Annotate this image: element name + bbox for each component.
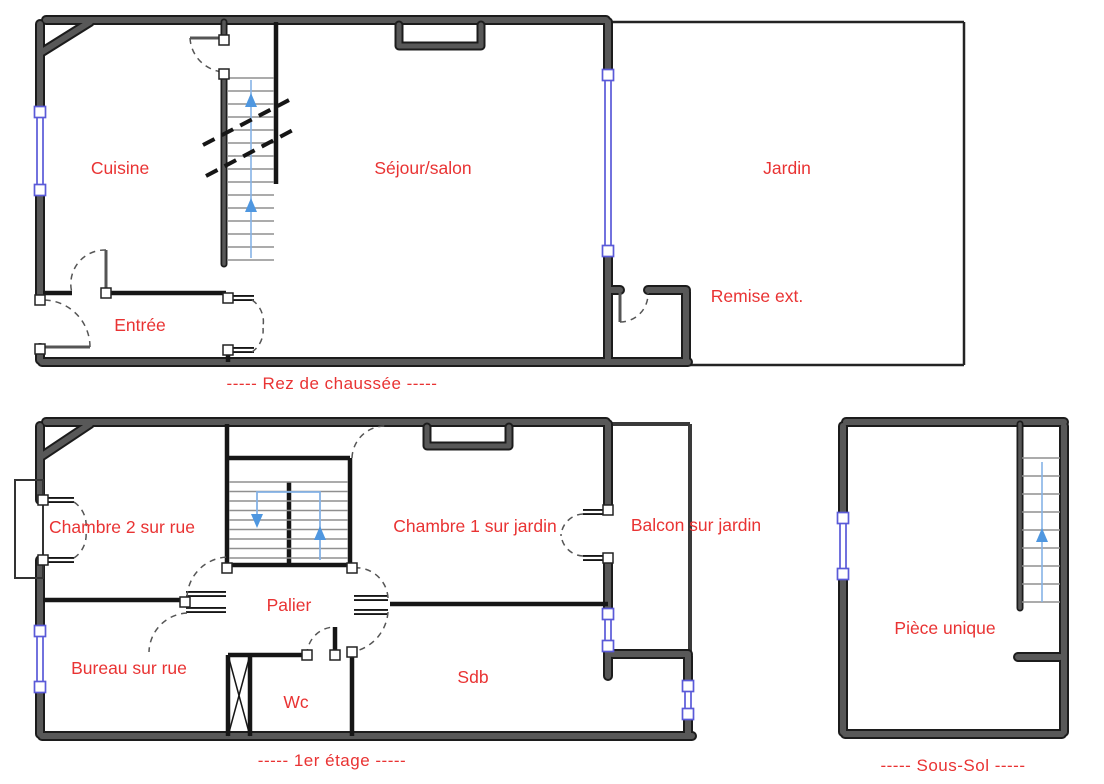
room-label-sdb: Sdb (457, 667, 488, 687)
window (838, 513, 849, 580)
window-grip-icon (35, 107, 46, 118)
window-grip-icon (603, 70, 614, 81)
wall-grip-icon (603, 553, 613, 563)
window-grip-icon (683, 709, 694, 720)
wall-grip-icon (219, 35, 229, 45)
room-label-cuisine: Cuisine (91, 158, 149, 178)
window-grip-icon (838, 569, 849, 580)
floor-plan-first: Chambre 2 sur rueChambre 1 sur jardinBal… (15, 422, 761, 770)
floor-caption-rdc: ----- Rez de chaussée ----- (227, 374, 438, 393)
room-label-chambre2: Chambre 2 sur rue (49, 517, 195, 537)
door-swing (149, 613, 187, 652)
floor-plan-basement: Pièce unique----- Sous-Sol ----- (838, 422, 1065, 775)
wall-grip-icon (330, 650, 340, 660)
wall-grip-icon (101, 288, 111, 298)
wall-grip-icon (35, 344, 45, 354)
door-swing (561, 534, 583, 556)
wall-grip-icon (223, 293, 233, 303)
window-grip-icon (603, 609, 614, 620)
window (35, 107, 46, 196)
wall-grip-icon (603, 505, 613, 515)
wall-grip-icon (38, 495, 48, 505)
door-swing (43, 300, 90, 347)
window-grip-icon (35, 626, 46, 637)
wall (42, 424, 90, 456)
room-label-bureau: Bureau sur rue (71, 658, 187, 678)
stairs-up-arrow-icon (314, 526, 326, 540)
wall-grip-icon (223, 345, 233, 355)
wall-grip-icon (35, 295, 45, 305)
floor-plan-canvas: CuisineSéjour/salonJardinRemise ext.Entr… (0, 0, 1104, 784)
wall-grip-icon (347, 563, 357, 573)
window (603, 609, 614, 652)
door-swing (352, 612, 388, 652)
floor-caption-sous-sol: ----- Sous-Sol ----- (880, 756, 1025, 775)
window-grip-icon (603, 641, 614, 652)
room-label-balcon: Balcon sur jardin (631, 515, 761, 535)
room-label-sejour-salon: Séjour/salon (374, 158, 471, 178)
window-grip-icon (603, 246, 614, 257)
door-swing (71, 250, 106, 293)
window-grip-icon (35, 682, 46, 693)
chimney (399, 25, 481, 46)
room-label-entree: Entrée (114, 315, 166, 335)
room-label-remise-ext: Remise ext. (711, 286, 803, 306)
floor-plan-drawing: CuisineSéjour/salonJardinRemise ext.Entr… (0, 0, 1104, 784)
stairs-up-arrow-icon (245, 198, 257, 212)
door-swing (561, 514, 583, 536)
wall-grip-icon (180, 597, 190, 607)
door-swing (352, 426, 385, 458)
chimney (427, 427, 509, 446)
stairs-up-arrow-icon (245, 93, 257, 107)
staircase (1022, 458, 1060, 602)
room-label-palier: Palier (267, 595, 312, 615)
window (603, 70, 614, 257)
wall-grip-icon (38, 555, 48, 565)
wall-grip-icon (347, 647, 357, 657)
wall-grip-icon (302, 650, 312, 660)
window (35, 626, 46, 693)
window (683, 681, 694, 720)
window-grip-icon (35, 185, 46, 196)
window-grip-icon (683, 681, 694, 692)
floor-plan-ground: CuisineSéjour/salonJardinRemise ext.Entr… (35, 20, 965, 393)
room-label-piece-unique: Pièce unique (894, 618, 995, 638)
wall-grip-icon (219, 69, 229, 79)
room-label-chambre1: Chambre 1 sur jardin (393, 516, 556, 536)
wall (42, 22, 90, 52)
floor-caption-1er-etage: ----- 1er étage ----- (258, 751, 406, 770)
room-label-jardin: Jardin (763, 158, 811, 178)
door-swing (252, 300, 263, 326)
door-swing (620, 293, 648, 322)
window-grip-icon (838, 513, 849, 524)
stairs-down-arrow-icon (251, 514, 263, 528)
wall-grip-icon (222, 563, 232, 573)
room-label-wc: Wc (283, 692, 309, 712)
